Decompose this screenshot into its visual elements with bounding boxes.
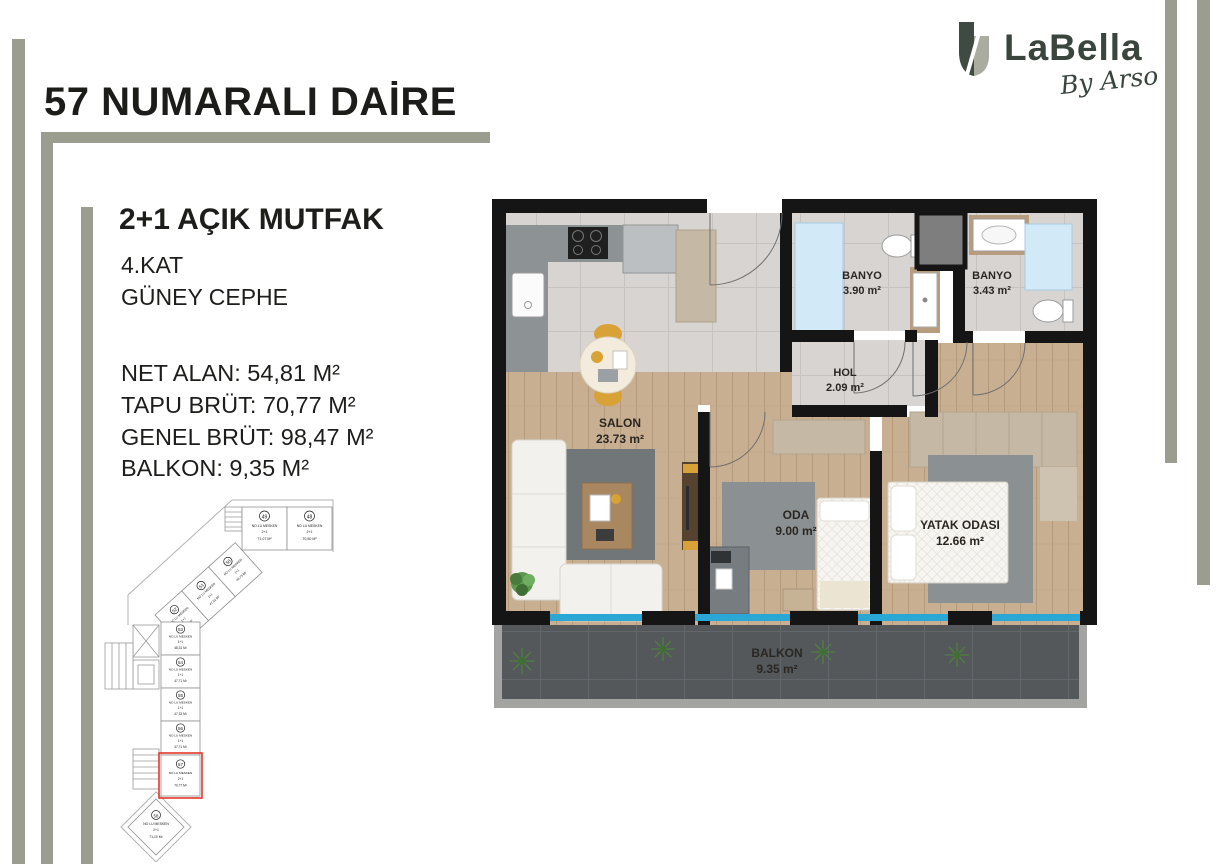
floor-plan: SALON 23.73 m² BANYO 3.90 m² BANYO 3.43 … [492, 199, 1097, 708]
hol-label: HOL [833, 367, 857, 379]
svg-text:1+1: 1+1 [178, 706, 184, 710]
building-key-plan: 49 NO LU MESKEN 2+1 71,07 M² 48 NO LU ME… [95, 497, 335, 862]
pillow [891, 486, 916, 531]
hol-area: 2.09 m² [826, 382, 864, 394]
svg-text:71,07 M²: 71,07 M² [257, 537, 272, 541]
accent-bar-right-outer [1197, 0, 1210, 585]
svg-text:2+1: 2+1 [306, 530, 312, 534]
brand-name: LaBella [1004, 27, 1143, 69]
shower-2 [1025, 224, 1072, 290]
keyplan-unit-48: 48 NO LU MESKEN 2+1 70,50 M² [287, 507, 332, 550]
svg-text:48: 48 [307, 514, 313, 520]
svg-text:48,31 M²: 48,31 M² [174, 646, 187, 650]
toilet-1 [882, 235, 912, 257]
tapu-gross-line: TAPU BRÜT: 70,77 M² [121, 392, 356, 419]
keyplan-column-units: 53 NO LU MESKEN 1+1 48,31 M² 54 NO LU ME… [159, 622, 202, 798]
salon-label: SALON [599, 416, 641, 430]
svg-text:2+1: 2+1 [178, 777, 184, 781]
svg-text:NO LU MESKEN: NO LU MESKEN [169, 734, 192, 738]
svg-text:47,71 M²: 47,71 M² [174, 745, 187, 749]
page-title: 57 NUMARALI DAİRE [44, 80, 457, 125]
svg-text:NO LU MESKEN: NO LU MESKEN [169, 701, 192, 705]
svg-text:57: 57 [178, 762, 184, 767]
net-area-line: NET ALAN: 54,81 M² [121, 360, 340, 387]
svg-text:55: 55 [178, 693, 184, 698]
accent-bar-left-middle [41, 132, 53, 864]
svg-text:2+1: 2+1 [261, 530, 267, 534]
shaft [917, 213, 965, 267]
tulip-logo-icon [953, 22, 995, 78]
svg-text:49: 49 [262, 514, 268, 520]
floor-label: 4.KAT [121, 252, 183, 279]
banyo1-area: 3.90 m² [843, 285, 881, 297]
banyo1-label: BANYO [842, 270, 882, 282]
unit-type-heading: 2+1 AÇIK MUTFAK [119, 203, 384, 237]
salon-area: 23.73 m² [596, 432, 644, 446]
balkon-label: BALKON [751, 646, 802, 660]
svg-text:56: 56 [178, 726, 184, 731]
balcony-area-line: BALKON: 9,35 M² [121, 455, 309, 482]
banyo2-area: 3.43 m² [973, 285, 1011, 297]
keyplan-unit-58: 58 NO LU MESKEN 2+1 71,10 M² [128, 799, 184, 855]
brand-logo: LaBella By Arso [948, 18, 1168, 98]
keyplan-unit-49: 49 NO LU MESKEN 2+1 71,07 M² [242, 507, 287, 550]
refrigerator [623, 225, 678, 273]
yatak-area: 12.66 m² [936, 534, 984, 548]
svg-text:58: 58 [153, 813, 159, 818]
title-underline-bar [41, 132, 490, 143]
stool [783, 589, 813, 611]
svg-text:47,33 M²: 47,33 M² [174, 712, 187, 716]
facade-label: GÜNEY CEPHE [121, 284, 288, 311]
svg-text:NO LU MESKEN: NO LU MESKEN [297, 524, 323, 528]
svg-text:71,10 M²: 71,10 M² [149, 835, 163, 839]
accent-bar-left-inner [81, 207, 93, 864]
svg-text:NO LU MESKEN: NO LU MESKEN [169, 771, 192, 775]
svg-text:NO LU MESKEN: NO LU MESKEN [252, 524, 278, 528]
oda-headboard-shelf [773, 420, 865, 454]
svg-text:2+1: 2+1 [153, 828, 159, 832]
svg-text:1+1: 1+1 [178, 739, 184, 743]
tv-screen [686, 486, 689, 530]
shower-1 [795, 223, 843, 335]
dining-table [580, 337, 636, 393]
oda-label: ODA [783, 508, 810, 522]
svg-text:1+1: 1+1 [178, 673, 184, 677]
oda-area: 9.00 m² [775, 524, 816, 538]
pillow [891, 535, 916, 580]
toilet-2 [1033, 300, 1063, 322]
svg-text:70,50 M²: 70,50 M² [302, 537, 317, 541]
svg-text:1+1: 1+1 [178, 640, 184, 644]
yatak-label: YATAK ODASI [920, 518, 1000, 532]
svg-text:NO LU MESKEN: NO LU MESKEN [143, 822, 169, 826]
svg-text:NO LU MESKEN: NO LU MESKEN [169, 635, 192, 639]
svg-text:47,71 M²: 47,71 M² [174, 679, 187, 683]
corridor-floor [698, 372, 792, 405]
total-gross-line: GENEL BRÜT: 98,47 M² [121, 424, 374, 451]
svg-text:70,77 M²: 70,77 M² [174, 784, 187, 788]
balkon-area: 9.35 m² [756, 662, 797, 676]
accent-bar-left-outer [12, 39, 25, 864]
svg-text:53: 53 [178, 627, 184, 632]
brochure-page: 57 NUMARALI DAİRE LaBella By Arso 2+1 AÇ… [0, 0, 1221, 864]
svg-text:NO LU MESKEN: NO LU MESKEN [169, 668, 192, 672]
banyo2-label: BANYO [972, 270, 1012, 282]
pillow [820, 501, 869, 521]
hall-floor [792, 340, 925, 406]
tv-unit [682, 462, 699, 550]
kitchen-sink [512, 273, 544, 317]
svg-text:54: 54 [178, 660, 184, 665]
